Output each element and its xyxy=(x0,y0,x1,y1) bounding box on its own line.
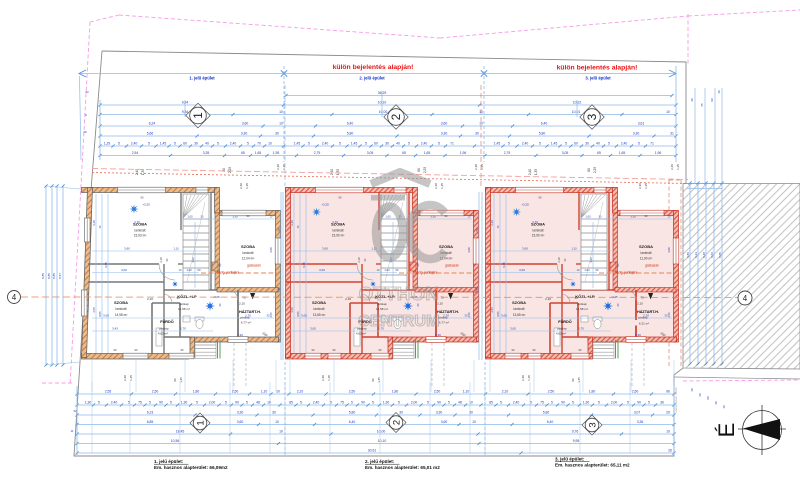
svg-text:90: 90 xyxy=(361,400,365,404)
svg-text:2,40: 2,40 xyxy=(421,141,428,145)
svg-text:12,04 m²: 12,04 m² xyxy=(242,257,255,261)
svg-text:2,54: 2,54 xyxy=(132,151,139,155)
svg-text:laminált: laminált xyxy=(514,307,525,311)
svg-text:laminált: laminált xyxy=(333,229,344,233)
svg-text:5: 5 xyxy=(565,141,567,145)
svg-text:90: 90 xyxy=(561,400,565,404)
svg-text:6,40: 6,40 xyxy=(349,420,356,424)
svg-text:3,30: 3,30 xyxy=(237,410,244,414)
svg-text:5: 5 xyxy=(330,400,332,404)
svg-text:3,60: 3,60 xyxy=(237,420,244,424)
svg-text:2,00: 2,00 xyxy=(611,400,618,404)
svg-text:1,45: 1,45 xyxy=(294,141,301,145)
svg-text:2,18: 2,18 xyxy=(357,257,361,263)
svg-text:4,61 m²: 4,61 m² xyxy=(158,332,168,336)
svg-text:3,00: 3,00 xyxy=(103,314,109,318)
svg-text:2. jelű épület:: 2. jelű épület: xyxy=(365,459,395,464)
svg-text:1,65: 1,65 xyxy=(619,151,626,155)
svg-text:2,10: 2,10 xyxy=(502,389,509,393)
svg-text:É: É xyxy=(714,423,739,438)
svg-text:2,40: 2,40 xyxy=(276,164,280,170)
svg-text:6,77 m²: 6,77 m² xyxy=(241,321,251,325)
svg-text:4: 4 xyxy=(743,294,748,303)
svg-text:6,40: 6,40 xyxy=(541,121,548,125)
svg-text:30: 30 xyxy=(399,410,403,414)
svg-text:3,60: 3,60 xyxy=(124,247,130,251)
svg-text:5: 5 xyxy=(351,400,353,404)
svg-text:1,65: 1,65 xyxy=(255,151,262,155)
svg-text:4,55: 4,55 xyxy=(467,312,471,318)
svg-text:30: 30 xyxy=(690,98,694,102)
svg-text:5: 5 xyxy=(372,400,374,404)
svg-text:Em. hasznos alapterület: 65,11: Em. hasznos alapterület: 65,11 m2 xyxy=(555,463,630,468)
svg-text:SZOBA: SZOBA xyxy=(639,244,653,249)
svg-text:5,80: 5,80 xyxy=(539,131,546,135)
svg-text:1,30: 1,30 xyxy=(583,400,590,404)
svg-text:laminált: laminált xyxy=(243,251,254,255)
svg-text:5: 5 xyxy=(308,141,310,145)
svg-text:2. jelű épület: 2. jelű épület xyxy=(359,76,385,81)
svg-text:házig. padlójára: házig. padlójára xyxy=(217,271,240,275)
svg-text:3,30: 3,30 xyxy=(435,333,441,337)
svg-text:90: 90 xyxy=(181,348,184,352)
svg-text:2,25: 2,25 xyxy=(423,167,427,173)
svg-text:4,55: 4,55 xyxy=(290,307,294,313)
svg-text:15,93 m²: 15,93 m² xyxy=(134,234,147,238)
svg-text:3,40: 3,40 xyxy=(290,220,294,226)
svg-text:90: 90 xyxy=(333,348,336,352)
svg-text:4,55: 4,55 xyxy=(490,307,494,313)
svg-text:gázkazán: gázkazán xyxy=(445,264,459,268)
svg-text:6,48: 6,48 xyxy=(104,262,108,268)
svg-text:5: 5 xyxy=(627,400,629,404)
svg-text:10: 10 xyxy=(279,429,283,433)
svg-text:2,79: 2,79 xyxy=(314,151,321,155)
svg-text:1,96: 1,96 xyxy=(655,151,662,155)
svg-text:1,35: 1,35 xyxy=(245,183,249,189)
svg-text:90: 90 xyxy=(637,400,641,404)
svg-text:2,40: 2,40 xyxy=(670,164,674,170)
svg-text:3,00: 3,00 xyxy=(121,268,127,272)
svg-text:3,60: 3,60 xyxy=(522,247,528,251)
svg-text:1,00: 1,00 xyxy=(584,268,590,272)
svg-text:+3,25: +3,25 xyxy=(521,203,529,207)
svg-text:3,05: 3,05 xyxy=(367,151,374,155)
svg-text:3,00: 3,00 xyxy=(510,327,516,331)
svg-text:5: 5 xyxy=(149,400,151,404)
svg-text:48: 48 xyxy=(256,400,260,404)
svg-text:2,40: 2,40 xyxy=(313,400,320,404)
svg-text:1,00: 1,00 xyxy=(186,268,192,272)
svg-text:3,00: 3,00 xyxy=(301,314,307,318)
svg-text:30: 30 xyxy=(272,410,276,414)
svg-text:+3,25: +3,25 xyxy=(321,203,329,207)
svg-text:3,30: 3,30 xyxy=(430,215,436,219)
svg-text:6,31 m²: 6,31 m² xyxy=(639,322,649,326)
svg-text:26: 26 xyxy=(83,130,87,134)
svg-text:5: 5 xyxy=(539,141,541,145)
svg-text:4,55: 4,55 xyxy=(667,312,671,318)
svg-text:1,35: 1,35 xyxy=(676,164,680,170)
svg-text:90: 90 xyxy=(379,348,382,352)
svg-text:OTTHON: OTTHON xyxy=(359,283,440,304)
svg-text:30: 30 xyxy=(275,131,279,135)
svg-text:3,60: 3,60 xyxy=(242,121,249,125)
svg-text:6,23: 6,23 xyxy=(147,410,154,414)
svg-text:10: 10 xyxy=(722,405,726,409)
svg-text:8,85: 8,85 xyxy=(52,273,56,279)
svg-text:5: 5 xyxy=(365,141,367,145)
svg-text:laminált: laminált xyxy=(135,229,146,233)
svg-text:1,00: 1,00 xyxy=(187,215,193,219)
svg-text:3,30: 3,30 xyxy=(232,215,238,219)
svg-text:1,35: 1,35 xyxy=(377,377,381,383)
svg-text:gázkazán: gázkazán xyxy=(247,264,261,268)
svg-text:90: 90 xyxy=(571,378,575,382)
svg-text:2,40: 2,40 xyxy=(522,141,529,145)
svg-text:SZOBA: SZOBA xyxy=(512,300,526,305)
svg-text:6,77 m²: 6,77 m² xyxy=(439,321,449,325)
svg-text:6,24: 6,24 xyxy=(149,121,156,125)
svg-text:4,61 m²: 4,61 m² xyxy=(556,332,566,336)
svg-text:SZOBA: SZOBA xyxy=(133,222,147,227)
svg-text:2,40: 2,40 xyxy=(474,164,478,170)
svg-text:2,50: 2,50 xyxy=(434,389,441,393)
svg-text:3,30: 3,30 xyxy=(630,215,636,219)
svg-text:65: 65 xyxy=(402,151,406,155)
svg-text:1,10: 1,10 xyxy=(463,389,470,393)
svg-text:1,35: 1,35 xyxy=(440,183,444,189)
svg-text:60: 60 xyxy=(587,168,591,172)
svg-text:6,80: 6,80 xyxy=(686,252,690,258)
svg-text:5: 5 xyxy=(300,400,302,404)
svg-text:1,35: 1,35 xyxy=(282,164,286,170)
svg-text:96: 96 xyxy=(666,389,670,393)
svg-text:2,50: 2,50 xyxy=(232,389,239,393)
svg-text:90: 90 xyxy=(437,400,441,404)
svg-text:5: 5 xyxy=(648,400,650,404)
svg-text:60: 60 xyxy=(183,141,187,145)
svg-text:1,35: 1,35 xyxy=(534,169,538,175)
svg-text:62: 62 xyxy=(85,90,89,94)
svg-text:Em. hasznos alapterület: 66,09: Em. hasznos alapterület: 66,09m2 xyxy=(154,465,228,470)
svg-text:2,40: 2,40 xyxy=(521,375,525,381)
svg-text:8,85: 8,85 xyxy=(41,273,45,279)
svg-text:90: 90 xyxy=(661,332,664,336)
svg-text:6,23: 6,23 xyxy=(694,252,698,258)
svg-text:3: 3 xyxy=(586,114,599,120)
svg-text:5: 5 xyxy=(438,141,440,145)
svg-text:1,48: 1,48 xyxy=(475,287,479,293)
svg-text:laminált: laminált xyxy=(314,307,325,311)
svg-text:6,40: 6,40 xyxy=(547,420,554,424)
svg-text:10: 10 xyxy=(666,110,670,114)
svg-text:2,40: 2,40 xyxy=(434,183,438,189)
svg-text:40: 40 xyxy=(205,141,209,145)
svg-text:5: 5 xyxy=(174,141,176,145)
svg-text:3,07: 3,07 xyxy=(634,410,641,414)
svg-text:8,65: 8,65 xyxy=(718,252,722,258)
svg-text:71: 71 xyxy=(450,141,454,145)
svg-text:házig. padlójára: házig. padlójára xyxy=(415,271,438,275)
svg-text:1,30: 1,30 xyxy=(85,400,92,404)
svg-text:30: 30 xyxy=(475,131,479,135)
svg-text:10: 10 xyxy=(279,110,283,114)
svg-text:10: 10 xyxy=(275,420,279,424)
svg-text:5: 5 xyxy=(448,400,450,404)
svg-text:3,60: 3,60 xyxy=(441,420,448,424)
svg-text:2,40: 2,40 xyxy=(330,169,334,175)
svg-text:1,00: 1,00 xyxy=(385,215,391,219)
svg-text:5: 5 xyxy=(398,400,400,404)
svg-text:3,60: 3,60 xyxy=(322,247,328,251)
svg-text:4,55: 4,55 xyxy=(92,307,96,313)
svg-text:5,66: 5,66 xyxy=(147,131,154,135)
svg-text:laminált: laminált xyxy=(533,229,544,233)
svg-text:FÜRDŐ: FÜRDŐ xyxy=(558,319,572,324)
svg-text:3,68: 3,68 xyxy=(269,247,273,253)
svg-text:30: 30 xyxy=(385,141,389,145)
svg-text:48: 48 xyxy=(458,400,462,404)
svg-text:SZOBA: SZOBA xyxy=(439,244,453,249)
svg-text:2,40: 2,40 xyxy=(513,400,520,404)
svg-text:3,30: 3,30 xyxy=(436,410,443,414)
svg-text:6,85: 6,85 xyxy=(147,420,154,424)
svg-text:1. jelű épület:: 1. jelű épület: xyxy=(154,459,184,464)
svg-text:11,58 m²: 11,58 m² xyxy=(178,307,190,311)
svg-text:HÁZTART.H.: HÁZTART.H. xyxy=(239,309,261,314)
svg-text:5: 5 xyxy=(408,141,410,145)
svg-text:SZOBA: SZOBA xyxy=(531,222,545,227)
svg-text:2,40: 2,40 xyxy=(230,141,237,145)
svg-text:2,10: 2,10 xyxy=(297,389,304,393)
svg-text:90: 90 xyxy=(263,332,266,336)
svg-text:5,80: 5,80 xyxy=(347,131,354,135)
svg-text:5: 5 xyxy=(500,400,502,404)
svg-text:10: 10 xyxy=(469,400,473,404)
svg-text:5: 5 xyxy=(170,400,172,404)
svg-text:3. jelű épület: 3. jelű épület xyxy=(585,76,611,81)
svg-text:13,65 m²: 13,65 m² xyxy=(313,313,326,317)
svg-text:2,25: 2,25 xyxy=(228,167,232,173)
svg-text:30,61: 30,61 xyxy=(368,448,377,452)
svg-text:2,40: 2,40 xyxy=(111,400,118,404)
svg-text:70: 70 xyxy=(257,141,261,145)
svg-text:1,35: 1,35 xyxy=(327,375,331,381)
svg-text:6,66: 6,66 xyxy=(710,252,714,258)
svg-text:5: 5 xyxy=(225,400,227,404)
svg-text:31: 31 xyxy=(670,131,674,135)
svg-text:6,40: 6,40 xyxy=(347,121,354,125)
svg-text:1: 1 xyxy=(195,420,206,425)
svg-text:+3,25: +3,25 xyxy=(142,203,150,207)
svg-text:1,80: 1,80 xyxy=(392,389,399,393)
svg-text:2: 2 xyxy=(391,420,402,425)
svg-text:90: 90 xyxy=(579,348,582,352)
svg-text:8,65: 8,65 xyxy=(496,311,500,317)
svg-text:1. jelű épület: 1. jelű épület xyxy=(189,76,215,81)
svg-text:külön bejelentés alapján!: külön bejelentés alapján! xyxy=(557,65,638,72)
svg-text:10,10: 10,10 xyxy=(378,439,387,443)
svg-text:3,00: 3,00 xyxy=(319,268,325,272)
svg-text:KÖZL.+LP: KÖZL.+LP xyxy=(575,294,595,299)
svg-text:3,30: 3,30 xyxy=(441,131,448,135)
svg-text:90: 90 xyxy=(339,196,342,200)
svg-text:5: 5 xyxy=(572,400,574,404)
svg-text:2,40: 2,40 xyxy=(123,375,127,381)
svg-text:11: 11 xyxy=(70,429,73,433)
svg-text:1,29: 1,29 xyxy=(104,141,111,145)
svg-text:3: 3 xyxy=(587,422,598,427)
svg-text:3,05: 3,05 xyxy=(562,151,569,155)
svg-text:2,18: 2,18 xyxy=(557,257,561,263)
svg-text:1,35: 1,35 xyxy=(577,377,581,383)
svg-text:1,00: 1,00 xyxy=(585,215,591,219)
svg-text:32: 32 xyxy=(73,409,77,413)
svg-text:5: 5 xyxy=(508,141,510,145)
svg-text:2,70: 2,70 xyxy=(180,327,186,331)
svg-text:10,00: 10,00 xyxy=(377,429,386,433)
svg-text:2,50: 2,50 xyxy=(152,389,159,393)
svg-text:1,35: 1,35 xyxy=(644,183,648,189)
svg-text:8,85: 8,85 xyxy=(47,273,51,279)
svg-text:8,67: 8,67 xyxy=(58,273,62,279)
svg-text:KÖZL.+LP: KÖZL.+LP xyxy=(177,294,197,299)
svg-text:3,68: 3,68 xyxy=(467,247,471,253)
svg-text:1,35: 1,35 xyxy=(129,375,133,381)
svg-text:30: 30 xyxy=(585,141,589,145)
svg-text:30: 30 xyxy=(714,401,718,405)
svg-text:30: 30 xyxy=(469,410,473,414)
svg-text:3,68: 3,68 xyxy=(667,247,671,253)
svg-text:4,55: 4,55 xyxy=(269,312,273,318)
svg-text:10: 10 xyxy=(279,121,283,125)
svg-text:3,61: 3,61 xyxy=(638,121,645,125)
svg-text:90: 90 xyxy=(235,400,239,404)
svg-text:90: 90 xyxy=(114,348,117,352)
svg-text:11,90 m²: 11,90 m² xyxy=(640,257,652,261)
svg-text:2,40: 2,40 xyxy=(131,141,138,145)
svg-text:75: 75 xyxy=(540,400,544,404)
svg-text:65: 65 xyxy=(597,151,601,155)
svg-text:2,50: 2,50 xyxy=(349,389,356,393)
svg-text:60: 60 xyxy=(698,393,702,397)
svg-text:1,10: 1,10 xyxy=(571,247,577,251)
svg-text:5: 5 xyxy=(427,400,429,404)
svg-text:10: 10 xyxy=(472,420,476,424)
svg-text:2,40: 2,40 xyxy=(322,141,329,145)
svg-text:8,65: 8,65 xyxy=(98,311,102,317)
svg-text:szennyvízcsat. tisztító: szennyvízcsat. tisztító xyxy=(674,387,678,413)
svg-text:65: 65 xyxy=(700,103,704,107)
svg-text:3,00: 3,00 xyxy=(519,268,525,272)
svg-text:1,48: 1,48 xyxy=(277,287,281,293)
svg-text:90: 90 xyxy=(533,348,536,352)
svg-text:FÜRDŐ: FÜRDŐ xyxy=(160,319,174,324)
svg-text:90: 90 xyxy=(539,196,542,200)
svg-text:3,40: 3,40 xyxy=(490,220,494,226)
svg-text:3,43: 3,43 xyxy=(112,327,118,331)
svg-text:9,76: 9,76 xyxy=(572,429,579,433)
svg-text:40: 40 xyxy=(396,141,400,145)
svg-text:2,40: 2,40 xyxy=(321,375,325,381)
svg-text:2,50: 2,50 xyxy=(632,389,639,393)
svg-text:3,35: 3,35 xyxy=(203,151,210,155)
svg-text:11,58 m²: 11,58 m² xyxy=(576,307,588,311)
svg-text:10: 10 xyxy=(267,400,271,404)
svg-text:3,00: 3,00 xyxy=(310,327,316,331)
svg-text:5,80: 5,80 xyxy=(543,410,550,414)
svg-text:13,65 m²: 13,65 m² xyxy=(513,313,526,317)
svg-text:90: 90 xyxy=(173,378,177,382)
svg-text:2,10: 2,10 xyxy=(637,302,643,306)
svg-text:1,30: 1,30 xyxy=(383,400,390,404)
svg-text:90: 90 xyxy=(135,348,138,352)
svg-text:3,30: 3,30 xyxy=(633,131,640,135)
svg-text:10: 10 xyxy=(268,141,272,145)
svg-text:külön bejelentés alapján!: külön bejelentés alapján! xyxy=(333,64,414,71)
svg-text:10,00: 10,00 xyxy=(379,110,388,114)
svg-text:1,35: 1,35 xyxy=(179,377,183,383)
svg-text:gázkazán: gázkazán xyxy=(645,264,659,268)
svg-text:2,10: 2,10 xyxy=(147,297,153,301)
svg-text:90: 90 xyxy=(312,348,315,352)
svg-text:60: 60 xyxy=(574,141,578,145)
svg-text:1: 1 xyxy=(192,112,205,118)
svg-text:5: 5 xyxy=(246,400,248,404)
svg-text:60: 60 xyxy=(374,141,378,145)
svg-text:1,45: 1,45 xyxy=(160,141,167,145)
svg-text:Em. hasznos alapterület: 65,01: Em. hasznos alapterület: 65,01 m2 xyxy=(365,465,440,470)
svg-text:3,30: 3,30 xyxy=(635,333,641,337)
svg-text:15,90 m²: 15,90 m² xyxy=(532,234,545,238)
svg-text:1,10: 1,10 xyxy=(261,389,268,393)
svg-text:járólap: járólap xyxy=(556,327,566,331)
svg-text:járólap: járólap xyxy=(178,302,189,306)
svg-text:90: 90 xyxy=(512,348,515,352)
svg-text:1,00: 1,00 xyxy=(384,268,390,272)
svg-text:SZOBA: SZOBA xyxy=(331,222,345,227)
svg-text:10: 10 xyxy=(666,429,670,433)
svg-text:10: 10 xyxy=(276,389,280,393)
svg-text:2,18: 2,18 xyxy=(159,257,163,263)
svg-text:1,80: 1,80 xyxy=(193,389,200,393)
svg-text:71: 71 xyxy=(650,141,654,145)
svg-text:járólap: járólap xyxy=(637,316,647,320)
svg-text:5: 5 xyxy=(598,400,600,404)
svg-text:90: 90 xyxy=(706,396,710,400)
svg-text:3. jelű épület:: 3. jelű épület: xyxy=(555,457,585,462)
svg-text:HÁZTART.H.: HÁZTART.H. xyxy=(637,309,659,314)
svg-text:36: 36 xyxy=(660,400,664,404)
svg-text:2,40: 2,40 xyxy=(638,183,642,189)
svg-text:10,01: 10,01 xyxy=(572,110,581,114)
svg-text:90: 90 xyxy=(710,98,714,102)
svg-text:SZOBA: SZOBA xyxy=(312,300,326,305)
svg-text:házig. padlójára: házig. padlójára xyxy=(615,271,638,275)
svg-text:1,35: 1,35 xyxy=(480,164,484,170)
svg-text:2,10: 2,10 xyxy=(239,302,245,306)
svg-text:5: 5 xyxy=(339,141,341,145)
svg-text:65: 65 xyxy=(241,151,245,155)
svg-text:6,48: 6,48 xyxy=(302,262,306,268)
svg-text:5: 5 xyxy=(98,400,100,404)
svg-text:85: 85 xyxy=(489,400,493,404)
svg-text:5: 5 xyxy=(551,400,553,404)
svg-text:2,79: 2,79 xyxy=(504,151,511,155)
svg-text:2,40: 2,40 xyxy=(528,169,532,175)
svg-text:6,48: 6,48 xyxy=(502,262,506,268)
